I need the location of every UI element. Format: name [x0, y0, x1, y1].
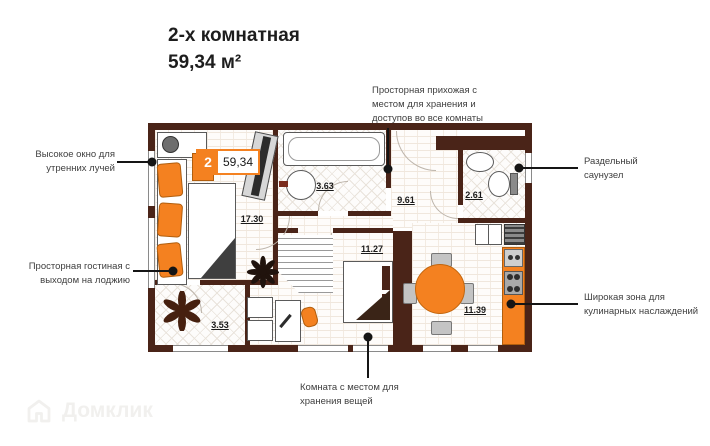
burner [507, 274, 513, 280]
bath-sink [286, 170, 316, 200]
area-label-living: 17.30 [241, 214, 264, 224]
callout-dot-bathroom [515, 164, 524, 173]
area-label-loggia: 3.53 [211, 320, 229, 330]
storage-box [247, 297, 273, 318]
callout-line-kitchen [512, 303, 578, 305]
area-label-bathroom: 3.63 [316, 181, 334, 191]
toilet-tank [510, 173, 518, 195]
callout-dot-bedroom [364, 333, 373, 342]
annotation-window: Высокое окно для утренних лучей [33, 148, 115, 176]
bedroom-bed [343, 261, 393, 323]
sofa-cushion [157, 162, 184, 198]
wall-wc-left [458, 150, 463, 205]
callout-line-window [117, 161, 151, 163]
burner [514, 286, 520, 292]
area-label-hallway: 9.61 [397, 195, 415, 205]
lamp [162, 136, 179, 153]
living-bed-blanket [201, 238, 235, 278]
annotation-living: Просторная гостиная с выходом на лоджию [18, 260, 130, 288]
bathtub-inner [288, 137, 380, 161]
area-label-bedroom: 11.27 [361, 244, 383, 254]
wall-bedroom-top-right [333, 228, 393, 233]
window-bottom-kitchen-1 [423, 345, 451, 352]
annotation-kitchen: Широкая зона для кулинарных наслаждений [584, 291, 702, 319]
domclick-logo: Домклик [24, 396, 153, 426]
floor-plan-page: 2-х комнатная 59,34 м² [0, 0, 710, 446]
burner [514, 274, 520, 280]
annotation-hallway: Просторная прихожая с местом для хранени… [372, 84, 498, 126]
kitchen-shelf [504, 224, 525, 245]
bed-pillow [382, 266, 390, 290]
dining-chair [431, 321, 452, 335]
storage-box [247, 320, 273, 341]
callout-dot-window [148, 158, 157, 167]
area-label-kitchen: 11.39 [464, 305, 486, 315]
window-bottom-bedroom-1 [298, 345, 348, 352]
sofa-cushion [157, 202, 183, 238]
callout-dot-living [169, 267, 178, 276]
area-label-wc: 2.61 [465, 190, 483, 200]
burner [507, 286, 513, 292]
apartment-badge: 2 59,34 [196, 149, 260, 175]
dining-table [415, 264, 465, 314]
plant-icon [162, 291, 202, 331]
callout-dot-kitchen [507, 300, 516, 309]
plant-icon [246, 255, 280, 289]
apartment-type: 2-х комнатная [168, 22, 300, 49]
sink-basin [508, 255, 513, 260]
fridge-divider [488, 225, 489, 244]
house-icon [24, 396, 54, 426]
window-bottom-bedroom-2 [353, 345, 388, 352]
kitchen-sink [504, 249, 523, 267]
window-bottom-loggia [173, 345, 228, 352]
annotation-bathroom: Раздельный саунузел [584, 155, 654, 183]
stove [504, 271, 523, 295]
floor-plan: 2 59,34 [148, 123, 532, 352]
wall-bath-bottom-right [348, 211, 391, 216]
desk-item [279, 314, 292, 328]
wall-wc-top [436, 136, 525, 150]
callout-line-bedroom [367, 340, 369, 378]
toilet-bowl [488, 171, 510, 197]
living-bed [188, 183, 236, 279]
annotation-bedroom: Комната с местом для хранения вещей [300, 381, 426, 409]
desk [275, 300, 301, 342]
apartment-area: 59,34 м² [168, 49, 300, 76]
sink-basin [515, 255, 520, 260]
window-bottom-kitchen-2 [468, 345, 498, 352]
page-title: 2-х комнатная 59,34 м² [168, 22, 300, 76]
bath-faucet [279, 181, 288, 187]
callout-line-living [133, 270, 172, 272]
callout-dot-hallway [384, 165, 393, 174]
badge-area: 59,34 [218, 151, 258, 173]
window-left-lower [148, 218, 155, 288]
bathtub [283, 132, 385, 166]
badge-rooms: 2 [198, 151, 218, 173]
callout-line-hallway [387, 128, 389, 168]
callout-line-bathroom [520, 167, 578, 169]
watermark-label: Домклик [62, 399, 153, 423]
wc-sink [466, 152, 494, 172]
wall-wc-bottom [458, 218, 525, 223]
fridge [475, 224, 502, 245]
